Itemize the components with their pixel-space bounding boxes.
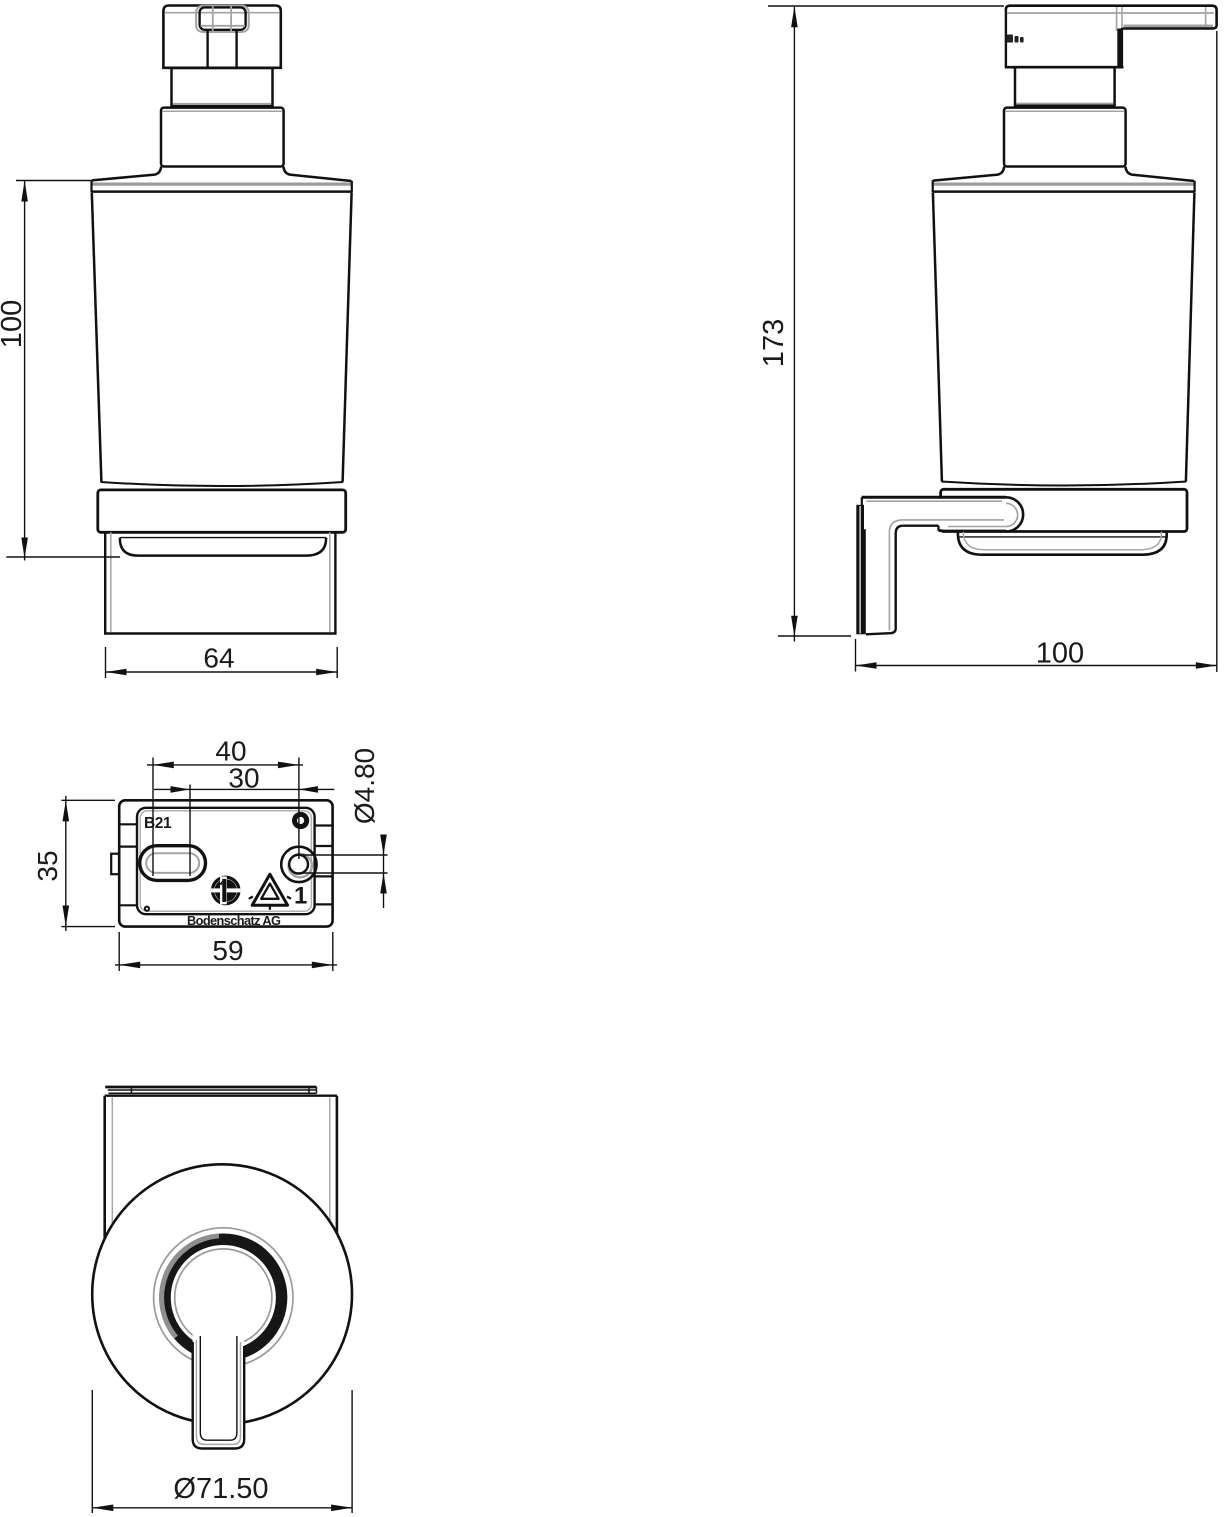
- svg-text:35: 35: [32, 850, 63, 881]
- svg-text:Ø4.80: Ø4.80: [349, 748, 380, 824]
- svg-text:100: 100: [1036, 638, 1084, 670]
- svg-text:173: 173: [758, 319, 790, 367]
- svg-text:Ø71.50: Ø71.50: [173, 1473, 268, 1505]
- svg-text:64: 64: [203, 643, 234, 674]
- svg-text:30: 30: [228, 763, 259, 794]
- svg-text:100: 100: [0, 300, 28, 348]
- svg-text:1: 1: [294, 883, 307, 910]
- svg-text:B21: B21: [144, 815, 172, 832]
- svg-text:Bodenschatz AG: Bodenschatz AG: [187, 913, 281, 928]
- svg-text:59: 59: [212, 935, 243, 966]
